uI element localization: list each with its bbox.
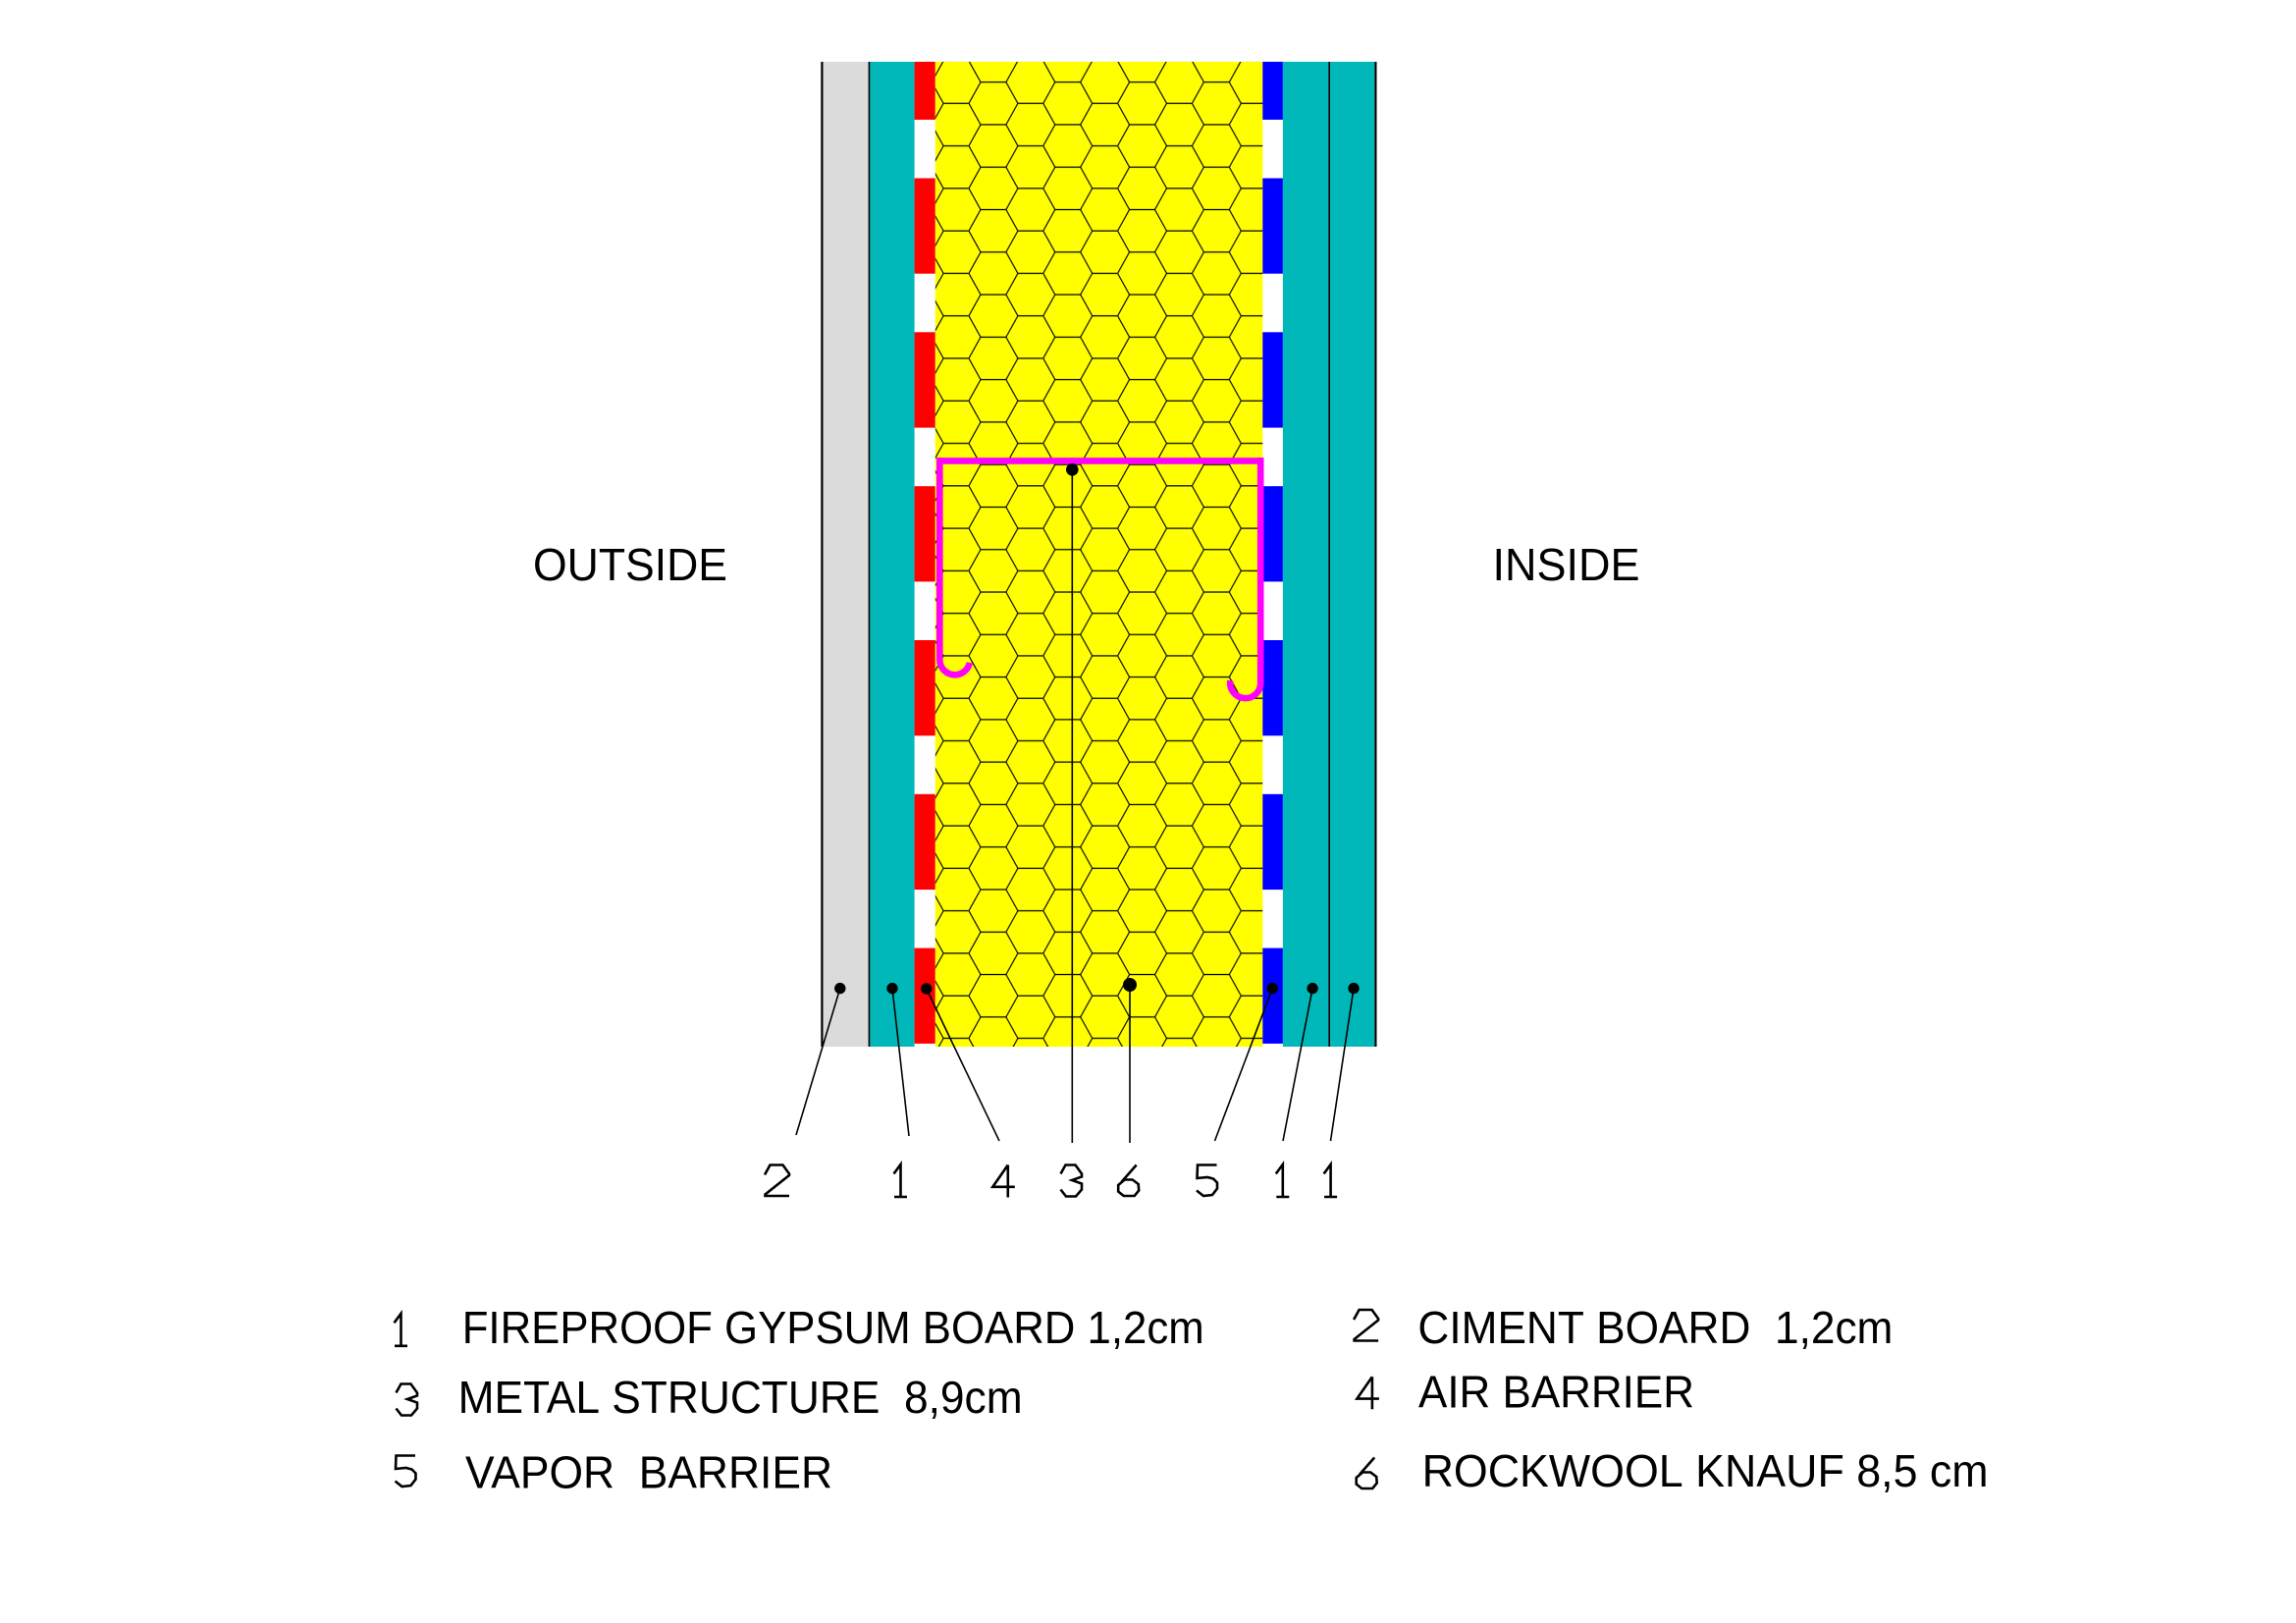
svg-text:FIREPROOF GYPSUM BOARD 1,2cm: FIREPROOF GYPSUM BOARD 1,2cm xyxy=(462,1302,1204,1353)
svg-text:ROCKWOOL KNAUF 8,5 cm: ROCKWOOL KNAUF 8,5 cm xyxy=(1422,1445,1989,1496)
svg-text:AIR BARRIER: AIR BARRIER xyxy=(1418,1367,1694,1418)
svg-text:METAL STRUCTURE 8,9cm: METAL STRUCTURE 8,9cm xyxy=(458,1372,1023,1423)
svg-text:VAPOR BARRIER: VAPOR BARRIER xyxy=(465,1447,832,1498)
svg-text:CIMENT BOARD 1,2cm: CIMENT BOARD 1,2cm xyxy=(1417,1302,1893,1353)
svg-text:INSIDE: INSIDE xyxy=(1493,539,1640,590)
svg-text:OUTSIDE: OUTSIDE xyxy=(533,539,727,590)
